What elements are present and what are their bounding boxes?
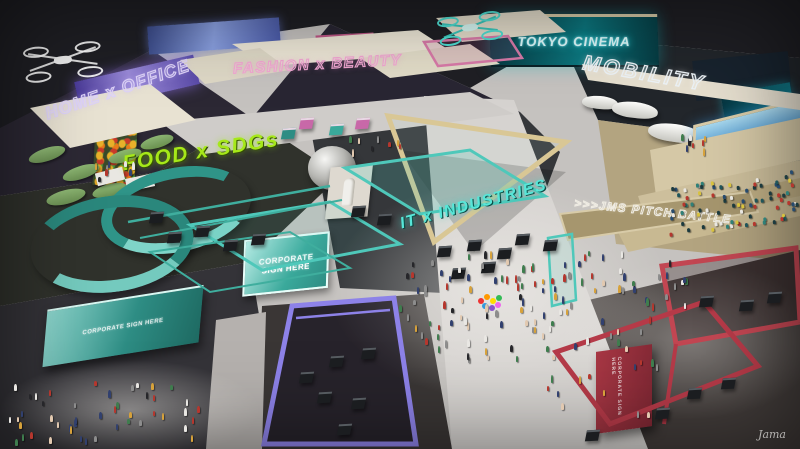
- person-dot: [625, 346, 628, 352]
- person-dot: [14, 384, 17, 391]
- person-dot: [510, 345, 513, 352]
- person-dot: [698, 208, 702, 212]
- person-dot: [451, 308, 454, 313]
- person-dot: [736, 186, 740, 190]
- person-dot: [525, 320, 528, 326]
- person-dot: [495, 310, 498, 317]
- drone-rotor: [77, 65, 104, 79]
- person-dot: [487, 355, 489, 360]
- person-dot: [656, 364, 658, 371]
- person-dot: [711, 193, 715, 197]
- person-dot: [411, 272, 414, 278]
- person-dot: [153, 411, 155, 416]
- person-dot: [665, 294, 668, 300]
- person-dot: [417, 287, 419, 294]
- person-dot: [690, 202, 694, 206]
- person-dot: [563, 274, 566, 282]
- person-dot: [131, 385, 134, 391]
- person-dot: [468, 254, 470, 260]
- person-dot: [719, 221, 723, 225]
- person-dot: [603, 390, 605, 396]
- person-dot: [669, 260, 671, 267]
- person-dot: [485, 348, 487, 355]
- person-dot: [429, 321, 431, 326]
- person-dot: [551, 375, 553, 383]
- person-dot: [726, 225, 730, 229]
- person-dot: [651, 359, 654, 367]
- person-dot: [458, 267, 461, 273]
- person-dot: [139, 420, 142, 426]
- person-dot: [549, 326, 551, 332]
- person-dot: [85, 438, 87, 445]
- person-dot: [581, 278, 583, 286]
- person-dot: [94, 436, 97, 442]
- person-dot: [634, 364, 636, 370]
- person-dot: [170, 385, 173, 390]
- person-dot: [547, 386, 549, 391]
- person-dot: [450, 320, 453, 326]
- person-dot: [586, 337, 589, 345]
- person-dot: [723, 199, 727, 203]
- person-dot: [464, 317, 467, 325]
- person-dot: [756, 178, 760, 182]
- visitor-crowd: [2, 380, 202, 446]
- person-dot: [15, 439, 18, 446]
- person-dot: [618, 285, 621, 293]
- person-dot: [446, 283, 448, 290]
- exhibit-cube: [149, 212, 164, 224]
- person-dot: [481, 263, 484, 269]
- person-dot: [666, 272, 668, 279]
- person-dot: [753, 182, 757, 186]
- person-dot: [440, 270, 443, 276]
- person-dot: [692, 143, 694, 148]
- person-dot: [467, 274, 470, 281]
- person-dot: [564, 262, 566, 268]
- person-dot: [461, 297, 463, 303]
- person-dot: [490, 251, 492, 259]
- person-dot: [80, 436, 82, 442]
- person-dot: [730, 224, 734, 228]
- person-dot: [557, 391, 559, 397]
- person-dot: [146, 392, 148, 399]
- person-dot: [186, 399, 188, 406]
- person-dot: [730, 220, 734, 224]
- person-dot: [132, 162, 135, 170]
- person-dot: [162, 413, 164, 420]
- person-dot: [413, 300, 416, 305]
- person-dot: [685, 196, 689, 200]
- person-dot: [687, 228, 691, 232]
- person-dot: [349, 136, 352, 143]
- drone-body: [54, 55, 73, 65]
- person-dot: [730, 196, 734, 200]
- person-dot: [9, 417, 11, 423]
- person-dot: [542, 333, 544, 339]
- person-dot: [700, 185, 704, 189]
- person-dot: [584, 254, 586, 261]
- person-dot: [704, 136, 706, 142]
- person-dot: [399, 305, 402, 312]
- person-dot: [124, 161, 127, 167]
- person-dot: [759, 183, 763, 187]
- person-dot: [698, 191, 702, 195]
- person-dot: [388, 142, 391, 147]
- person-dot: [578, 261, 581, 267]
- person-dot: [640, 360, 642, 365]
- person-dot: [682, 202, 686, 206]
- person-dot: [99, 412, 102, 419]
- person-dot: [153, 395, 155, 401]
- person-dot: [753, 222, 757, 226]
- person-dot: [712, 185, 716, 189]
- person-dot: [431, 260, 434, 266]
- exhibit-cube: [699, 296, 714, 308]
- person-dot: [602, 280, 605, 286]
- exhibit-cube: [281, 128, 296, 140]
- person-dot: [702, 140, 704, 146]
- person-dot: [484, 335, 487, 342]
- person-dot: [696, 183, 700, 187]
- person-dot: [377, 136, 379, 143]
- person-dot: [795, 203, 799, 207]
- person-dot: [21, 411, 23, 417]
- person-dot: [49, 390, 51, 396]
- person-dot: [652, 303, 654, 311]
- person-dot: [530, 305, 532, 311]
- person-dot: [197, 406, 200, 413]
- person-dot: [568, 272, 571, 279]
- exhibition-hall-render: TOKYO CINEMA CORPORATE SIGN HERE CORPORA…: [0, 0, 800, 449]
- person-dot: [520, 307, 523, 313]
- person-dot: [754, 198, 758, 202]
- person-dot: [681, 222, 685, 226]
- person-dot: [697, 212, 701, 216]
- exhibit-cube: [739, 300, 754, 312]
- person-dot: [412, 262, 414, 267]
- person-dot: [534, 327, 536, 333]
- person-dot: [49, 437, 52, 444]
- exhibit-cube: [721, 378, 736, 390]
- person-dot: [728, 183, 732, 187]
- person-dot: [129, 169, 132, 176]
- person-dot: [438, 325, 440, 330]
- exhibit-cube: [195, 226, 210, 238]
- person-dot: [129, 412, 132, 418]
- person-dot: [777, 184, 781, 188]
- person-dot: [711, 181, 715, 185]
- person-dot: [542, 288, 544, 293]
- person-dot: [75, 417, 77, 424]
- person-dot: [623, 273, 626, 281]
- person-dot: [723, 195, 727, 199]
- person-dot: [711, 228, 715, 232]
- person-dot: [619, 268, 622, 274]
- exhibit-cube: [351, 206, 366, 218]
- person-dot: [649, 316, 651, 324]
- person-dot: [136, 383, 139, 388]
- person-dot: [352, 149, 354, 157]
- person-dot: [506, 276, 508, 284]
- person-dot: [467, 339, 470, 347]
- person-dot: [517, 283, 519, 291]
- person-dot: [782, 193, 786, 197]
- person-dot: [786, 191, 790, 195]
- person-dot: [95, 163, 97, 170]
- person-dot: [406, 273, 409, 279]
- person-dot: [70, 426, 72, 434]
- person-dot: [449, 276, 451, 282]
- person-dot: [788, 178, 792, 182]
- person-dot: [191, 435, 193, 442]
- person-dot: [467, 322, 469, 330]
- person-dot: [719, 185, 723, 189]
- person-dot: [574, 343, 577, 350]
- person-dot: [554, 293, 557, 300]
- exhibit-cube: [585, 430, 600, 442]
- person-dot: [485, 304, 488, 312]
- person-dot: [437, 334, 439, 340]
- person-dot: [745, 223, 749, 227]
- visitor-crowd: [88, 156, 142, 190]
- exhibit-cube: [377, 214, 392, 226]
- person-dot: [108, 390, 111, 398]
- person-dot: [74, 403, 76, 408]
- person-dot: [776, 205, 780, 209]
- purple-frame-booth: [264, 298, 416, 444]
- person-dot: [17, 417, 19, 422]
- drone-body: [462, 23, 479, 32]
- person-dot: [705, 208, 709, 212]
- person-dot: [486, 313, 488, 319]
- person-dot: [588, 374, 591, 379]
- person-dot: [769, 196, 773, 200]
- person-dot: [407, 314, 409, 321]
- person-dot: [460, 315, 462, 320]
- person-dot: [602, 254, 604, 261]
- person-dot: [791, 202, 795, 206]
- person-dot: [421, 332, 423, 339]
- person-dot: [622, 287, 624, 294]
- person-dot: [703, 148, 705, 156]
- person-dot: [566, 309, 568, 315]
- exhibit-cube: [337, 424, 352, 436]
- person-dot: [674, 283, 676, 290]
- person-dot: [658, 274, 660, 280]
- person-dot: [516, 356, 518, 362]
- person-dot: [763, 220, 767, 224]
- visitor-crowd: [630, 250, 690, 310]
- person-dot: [501, 275, 503, 282]
- person-dot: [108, 161, 110, 168]
- person-dot: [19, 422, 22, 429]
- person-dot: [127, 419, 130, 424]
- visitor-crowd: [676, 132, 720, 158]
- person-dot: [551, 278, 554, 284]
- drone-rotor: [25, 70, 52, 84]
- person-dot: [737, 203, 741, 207]
- person-dot: [50, 415, 53, 422]
- exhibit-cube: [299, 372, 314, 384]
- visitor-crowd: [560, 250, 630, 300]
- person-dot: [594, 288, 596, 293]
- person-dot: [515, 275, 517, 283]
- person-dot: [94, 381, 97, 386]
- person-dot: [689, 135, 692, 141]
- person-dot: [425, 338, 428, 345]
- person-dot: [684, 303, 686, 309]
- person-dot: [787, 201, 791, 205]
- exhibit-cube: [251, 234, 266, 246]
- person-dot: [683, 277, 686, 283]
- visitor-crowd: [540, 300, 660, 420]
- person-dot: [745, 188, 749, 192]
- person-dot: [399, 144, 401, 149]
- person-dot: [579, 376, 581, 384]
- person-dot: [184, 408, 187, 416]
- person-dot: [532, 263, 534, 271]
- person-dot: [522, 265, 525, 273]
- person-dot: [42, 401, 44, 406]
- person-dot: [749, 203, 753, 207]
- exhibit-cube: [329, 356, 344, 368]
- person-dot: [415, 325, 417, 332]
- person-dot: [792, 207, 796, 211]
- person-dot: [151, 383, 154, 390]
- person-dot: [677, 193, 681, 197]
- person-dot: [637, 411, 639, 418]
- person-dot: [777, 193, 781, 197]
- person-dot: [601, 318, 604, 325]
- person-dot: [438, 346, 440, 353]
- person-dot: [467, 353, 469, 360]
- visitor-crowd: [330, 130, 410, 156]
- drone-rotor: [481, 28, 504, 41]
- person-dot: [674, 187, 678, 191]
- person-dot: [714, 222, 718, 226]
- drone-white: [22, 32, 105, 90]
- exhibit-cube: [223, 240, 238, 252]
- person-dot: [29, 394, 31, 399]
- person-dot: [542, 279, 544, 284]
- person-dot: [358, 138, 360, 144]
- person-dot: [740, 209, 744, 213]
- person-dot: [741, 199, 745, 203]
- person-dot: [570, 302, 572, 309]
- person-dot: [445, 340, 447, 348]
- person-dot: [791, 183, 795, 187]
- person-dot: [735, 220, 739, 224]
- person-dot: [371, 146, 373, 151]
- person-dot: [114, 406, 116, 413]
- person-dot: [35, 393, 37, 400]
- person-dot: [775, 180, 779, 184]
- person-dot: [647, 412, 650, 418]
- person-dot: [672, 213, 676, 217]
- person-dot: [646, 298, 649, 306]
- person-dot: [192, 417, 194, 424]
- person-dot: [680, 211, 684, 215]
- drone-rotor: [478, 10, 501, 23]
- person-dot: [732, 203, 736, 207]
- person-dot: [686, 145, 688, 152]
- exhibit-cube: [355, 118, 370, 130]
- person-dot: [116, 402, 119, 409]
- person-dot: [424, 291, 427, 296]
- person-dot: [683, 188, 687, 192]
- person-dot: [30, 432, 33, 439]
- exhibit-cube: [351, 398, 366, 410]
- person-dot: [760, 198, 764, 202]
- exhibit-cube: [317, 392, 332, 404]
- person-dot: [500, 321, 503, 328]
- person-dot: [749, 214, 753, 218]
- person-dot: [484, 251, 487, 259]
- person-dot: [681, 134, 684, 141]
- person-dot: [22, 434, 24, 441]
- person-dot: [588, 251, 590, 256]
- person-dot: [790, 170, 794, 174]
- person-dot: [621, 251, 623, 258]
- person-dot: [184, 425, 187, 432]
- person-dot: [506, 259, 509, 265]
- person-dot: [610, 333, 612, 339]
- exhibit-cube: [299, 118, 314, 130]
- person-dot: [554, 286, 556, 292]
- exhibit-cube: [361, 348, 376, 360]
- person-dot: [443, 301, 446, 309]
- person-dot: [632, 281, 635, 286]
- person-dot: [669, 232, 673, 236]
- exhibit-cube: [767, 292, 782, 304]
- person-dot: [617, 339, 620, 346]
- watermark: Jama: [758, 428, 786, 441]
- person-dot: [617, 329, 619, 335]
- person-dot: [640, 329, 642, 335]
- person-dot: [717, 211, 721, 215]
- person-dot: [633, 286, 636, 293]
- person-dot: [116, 424, 118, 430]
- person-dot: [591, 273, 593, 279]
- person-dot: [769, 191, 773, 195]
- person-dot: [780, 198, 784, 202]
- person-dot: [534, 281, 536, 287]
- person-dot: [57, 422, 59, 428]
- person-dot: [98, 177, 101, 182]
- exhibit-cube: [515, 234, 530, 246]
- person-dot: [518, 276, 520, 281]
- person-dot: [469, 286, 472, 293]
- person-dot: [494, 277, 497, 284]
- person-dot: [773, 220, 777, 224]
- person-dot: [671, 187, 675, 191]
- person-dot: [702, 225, 706, 229]
- person-dot: [780, 217, 784, 221]
- exhibit-cube: [687, 388, 702, 400]
- person-dot: [534, 319, 536, 325]
- exhibit-cube: [167, 232, 182, 244]
- person-dot: [105, 169, 108, 176]
- drone-rotor: [74, 40, 101, 54]
- person-dot: [753, 204, 757, 208]
- person-dot: [741, 204, 745, 208]
- person-dot: [521, 283, 523, 289]
- person-dot: [522, 298, 524, 306]
- person-dot: [561, 403, 564, 410]
